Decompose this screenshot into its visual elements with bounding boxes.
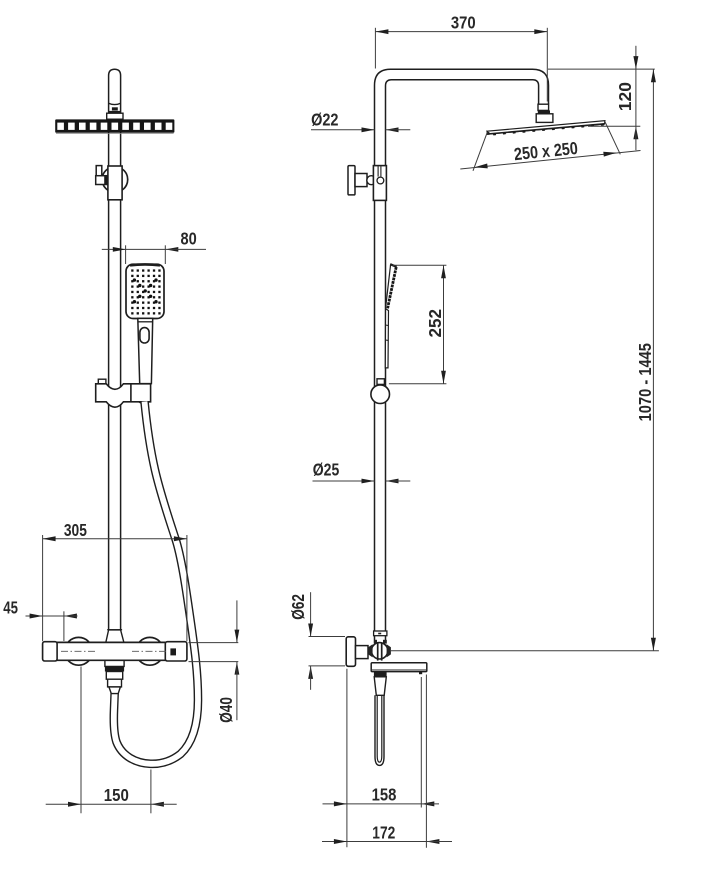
svg-text:Ø62: Ø62 [288,594,308,620]
svg-text:Ø22: Ø22 [311,110,339,130]
svg-text:45: 45 [3,598,18,618]
svg-text:80: 80 [181,229,197,249]
svg-text:252: 252 [425,309,445,338]
svg-text:Ø25: Ø25 [313,460,340,480]
svg-text:Ø40: Ø40 [216,697,236,723]
svg-text:158: 158 [372,784,397,804]
svg-text:305: 305 [64,520,87,540]
svg-text:150: 150 [104,785,129,805]
svg-text:370: 370 [451,12,476,32]
svg-text:172: 172 [372,822,395,842]
svg-text:120: 120 [615,82,635,111]
svg-text:1070 - 1445: 1070 - 1445 [635,343,655,422]
